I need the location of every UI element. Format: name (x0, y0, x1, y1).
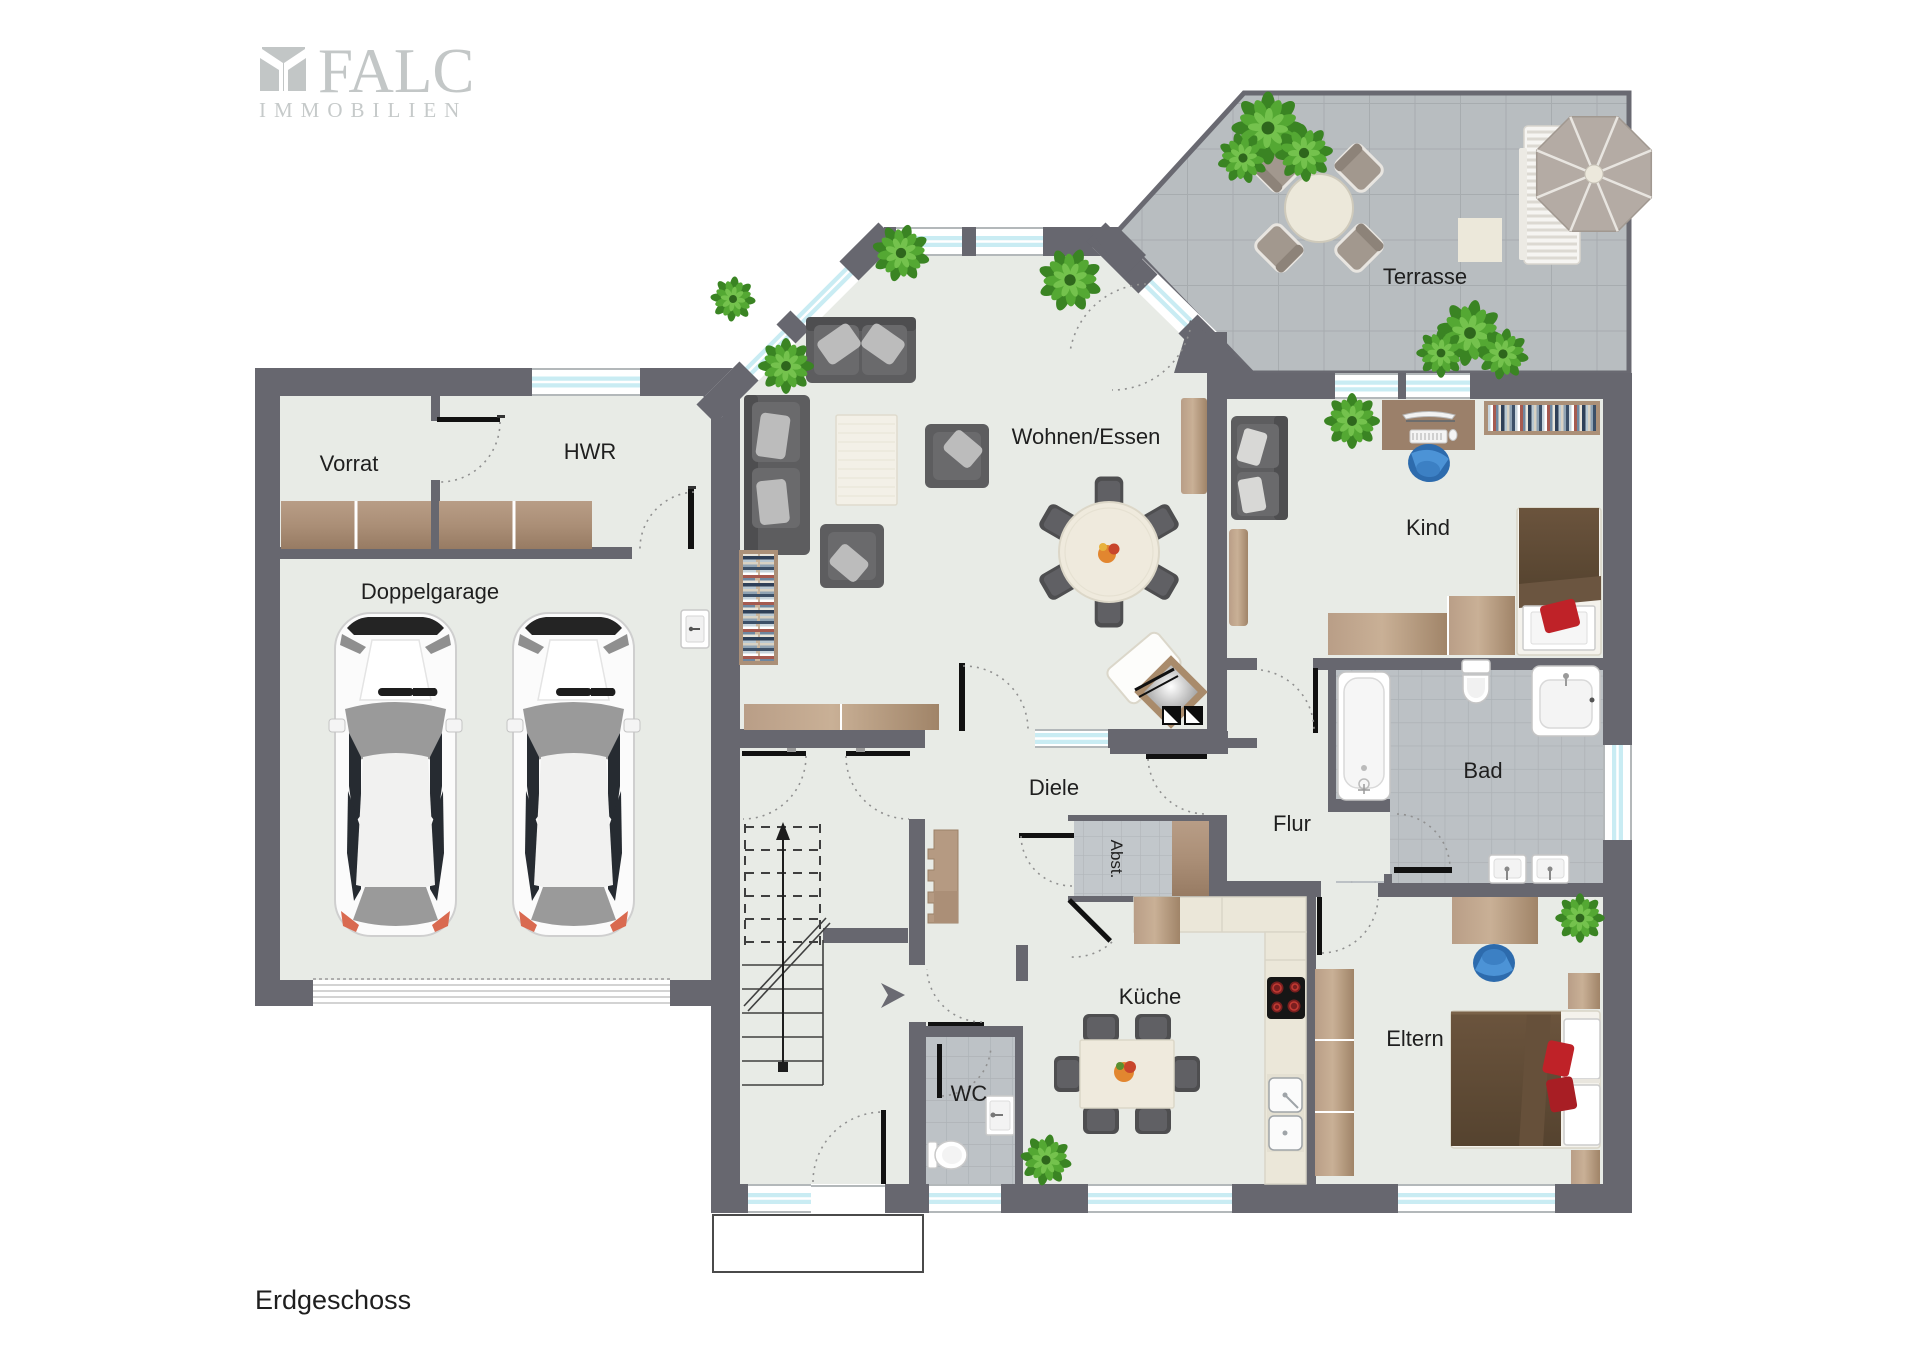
svg-text:FALC: FALC (318, 36, 474, 106)
svg-text:Abst.: Abst. (1107, 840, 1126, 879)
svg-text:Vorrat: Vorrat (320, 451, 379, 476)
svg-text:Doppelgarage: Doppelgarage (361, 579, 499, 604)
svg-text:Kind: Kind (1406, 515, 1450, 540)
svg-text:Flur: Flur (1273, 811, 1311, 836)
svg-text:Eltern: Eltern (1386, 1026, 1443, 1051)
svg-text:HWR: HWR (564, 439, 617, 464)
svg-text:Erdgeschoss: Erdgeschoss (255, 1285, 411, 1315)
svg-text:IMMOBILIEN: IMMOBILIEN (259, 98, 467, 122)
svg-text:Bad: Bad (1463, 758, 1502, 783)
svg-text:WC: WC (951, 1081, 988, 1106)
svg-text:Küche: Küche (1119, 984, 1181, 1009)
svg-text:Wohnen/Essen: Wohnen/Essen (1012, 424, 1161, 449)
svg-text:Diele: Diele (1029, 775, 1079, 800)
svg-text:Terrasse: Terrasse (1383, 264, 1467, 289)
